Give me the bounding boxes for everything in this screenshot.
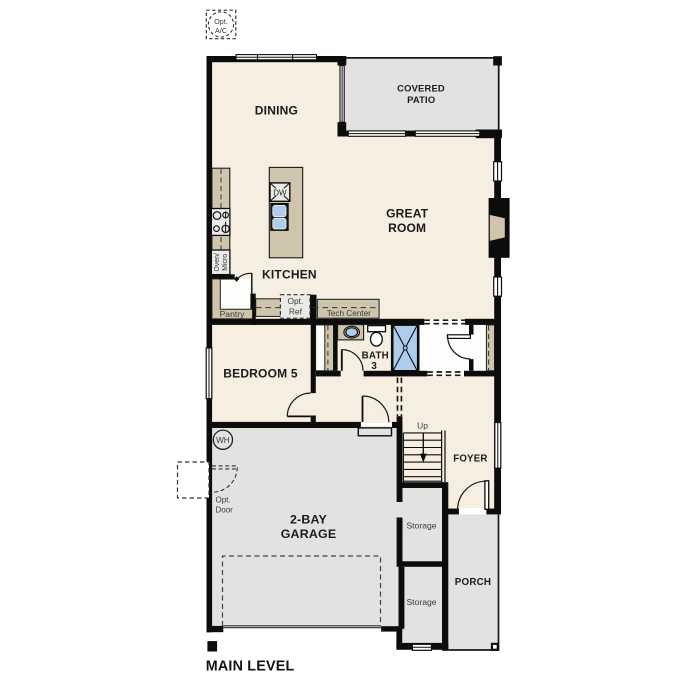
svg-text:COVERED: COVERED [397,83,445,94]
svg-text:Opt.: Opt. [287,296,303,306]
svg-text:3: 3 [371,361,377,372]
svg-text:PORCH: PORCH [455,577,491,588]
svg-text:Storage: Storage [406,521,436,531]
svg-text:2-BAY: 2-BAY [290,512,328,526]
svg-text:Door: Door [216,506,234,515]
svg-text:GARAGE: GARAGE [281,527,337,541]
svg-text:MAIN LEVEL: MAIN LEVEL [206,658,295,674]
svg-text:Ref: Ref [289,306,303,316]
svg-text:Up: Up [417,421,428,431]
svg-text:Opt.: Opt. [214,17,228,26]
svg-text:KITCHEN: KITCHEN [262,267,317,281]
svg-text:DW: DW [273,189,287,198]
svg-text:Tech Center: Tech Center [327,309,371,318]
svg-text:Micro: Micro [222,254,229,271]
svg-text:WH: WH [216,436,230,445]
svg-text:GREAT: GREAT [386,206,429,220]
svg-text:ROOM: ROOM [388,221,426,235]
svg-text:PATIO: PATIO [407,94,435,105]
svg-text:Opt.: Opt. [216,495,231,504]
svg-text:Storage: Storage [406,597,436,607]
svg-text:A/C: A/C [215,26,227,35]
svg-text:BEDROOM 5: BEDROOM 5 [223,366,298,380]
svg-text:Pantry: Pantry [220,309,246,319]
svg-text:FOYER: FOYER [453,454,487,465]
svg-text:Oven/: Oven/ [214,253,221,271]
svg-text:DINING: DINING [255,103,298,117]
